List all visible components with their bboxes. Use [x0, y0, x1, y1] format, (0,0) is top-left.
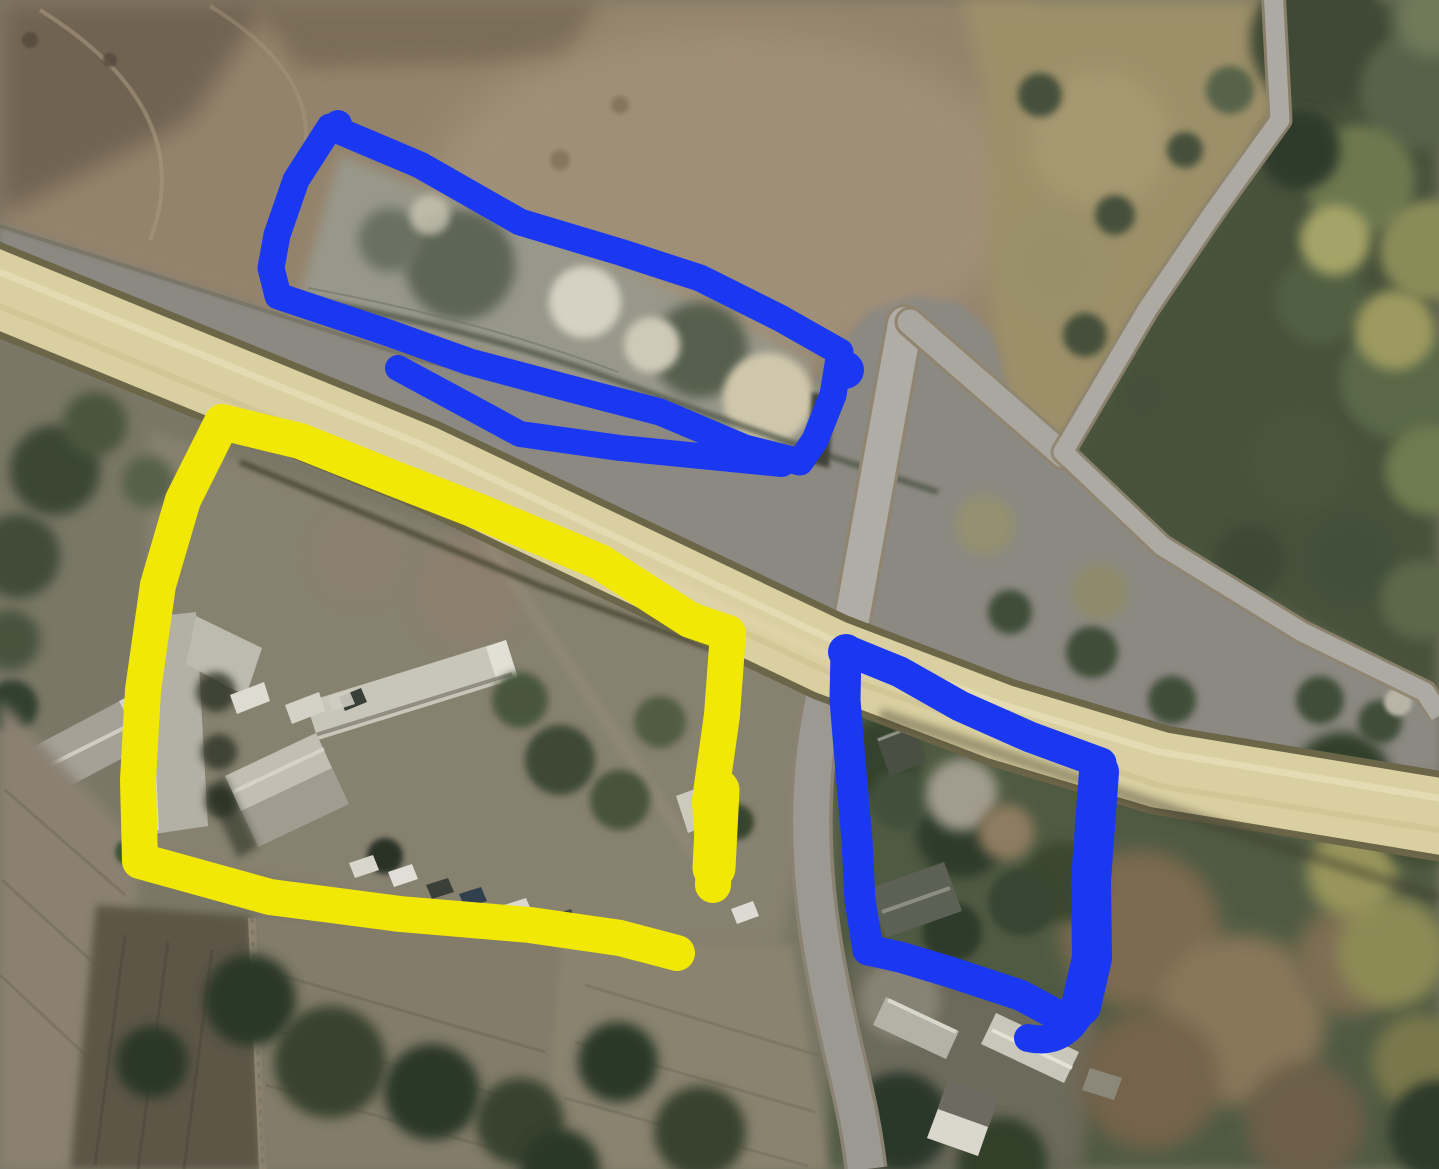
blue-outline-gravel-site-start-blob [324, 110, 352, 138]
yard-pink-patch-1 [418, 538, 522, 642]
satellite-map-canvas[interactable] [0, 0, 1439, 1169]
roadside-bush-4 [1296, 676, 1344, 724]
yellow-outline-end-cap [666, 938, 692, 964]
barn-shadow-tree-2 [201, 734, 237, 770]
roadside-bush-3 [1148, 676, 1196, 724]
grass-bush-4 [1063, 313, 1107, 357]
yard-tree-2 [590, 770, 650, 830]
blue-outline-house-plot-end-blob [1047, 1002, 1079, 1034]
grass-bush-3 [1167, 132, 1203, 168]
barn-shadow-tree-1 [196, 672, 236, 712]
yellow-outline-thick-right-edge [714, 790, 718, 868]
blue-outline-gravel-site-corner-blob [826, 351, 864, 389]
grass-bush-5 [1125, 375, 1165, 415]
grass-light-2 [1000, 210, 1110, 320]
bottom-tree-3 [384, 1044, 480, 1140]
satellite-view-stage [0, 0, 1439, 1169]
yard-tree-3 [634, 696, 686, 748]
gravel-pile-bright-1 [549, 266, 621, 338]
dirt-dark-band [250, 0, 600, 68]
bottom-tree-1 [204, 954, 296, 1046]
roadside-bush-1 [988, 590, 1032, 634]
tree-autumn-1 [1355, 290, 1435, 370]
bottom-tree-7 [116, 1026, 188, 1098]
yard-tree-4 [492, 672, 548, 728]
blue-outline-house-plot-thick-right-edge [1081, 772, 1099, 1006]
bottom-tree-2 [274, 1006, 386, 1118]
roadside-bush-2 [1066, 626, 1118, 678]
gravel-pile-bright-3 [723, 353, 813, 443]
blue-outline-house-plot-start-blob [828, 634, 864, 670]
roadside-tan-2 [1072, 564, 1128, 620]
gravel-pile-bright-2 [624, 317, 680, 373]
trees-left-strip-3 [63, 392, 127, 456]
rock-speckle-3 [550, 150, 570, 170]
grass-bush-1 [1018, 73, 1062, 117]
rock-speckle-2 [103, 53, 117, 67]
plot-tree-2 [988, 868, 1056, 936]
rock-speckle-1 [22, 32, 38, 48]
bottom-tree-5 [578, 1022, 658, 1102]
yard-tree-1 [525, 725, 595, 795]
grass-bush-2 [1095, 195, 1135, 235]
rock-speckle-4 [611, 96, 629, 114]
grass-bush-6 [1206, 66, 1254, 114]
tree-blob-7 [1250, 410, 1350, 510]
gravel-pile-bright-4 [410, 195, 450, 235]
plot-sandy-patch [978, 804, 1034, 860]
tree-autumn-2 [1300, 205, 1370, 275]
plot-tree-1 [870, 770, 930, 830]
roadside-tan-1 [955, 495, 1015, 555]
yard-pink-patch-2 [320, 515, 400, 595]
